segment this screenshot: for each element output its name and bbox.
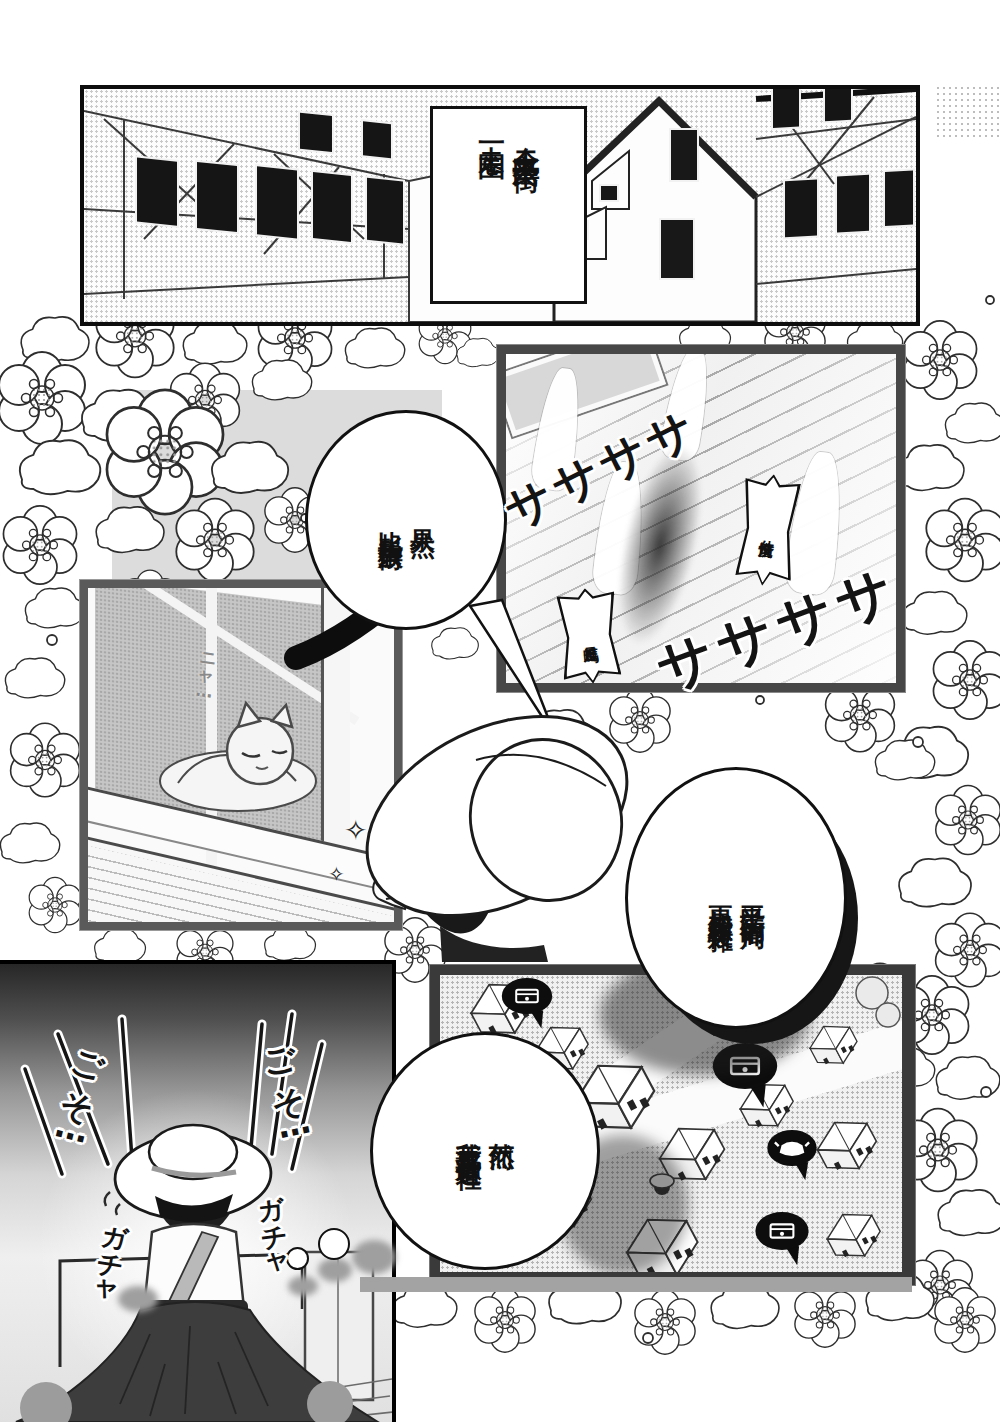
map-pin-pot (767, 1130, 816, 1180)
bubble-i-prefer-here: 然而我更喜歡這裡… (370, 1032, 600, 1270)
soft-shadow-blob (352, 1240, 396, 1274)
mini-bubble-what-situation: 什麼情況 (734, 471, 801, 588)
soft-shadow-blob (288, 1276, 318, 1296)
soft-shadow-blob (318, 1258, 352, 1282)
panel-room-girl (0, 960, 396, 1422)
sparkle-icon: ✧ (344, 814, 367, 847)
panel-cat-window (80, 580, 402, 930)
bubble-as-expected: 果然比起貴族街 (305, 410, 507, 630)
bubble-text: 平民街的佈局更加錯綜複雜 (704, 886, 768, 910)
panel-shadow-band (360, 1277, 912, 1292)
room-illustration (0, 964, 392, 1422)
thought-trail-circle (318, 1228, 350, 1260)
sparkle-icon: ✧ (328, 862, 345, 886)
map-pin-chest (755, 1212, 808, 1265)
bubble-commoner-layout: 平民街的佈局更加錯綜複雜 (625, 767, 847, 1029)
bubble-text: 然而我更喜歡這裡… (452, 1122, 519, 1180)
mini-bubble-is-it-wind: 是風嗎 (556, 586, 622, 687)
caption-text: 今天去平民街 走一圈！ (474, 125, 543, 168)
manga-page: 今天去平民街 走一圈！ ササササ ササササ 什麼情況 是風嗎 (0, 0, 1000, 1422)
cat-illustration (138, 693, 338, 813)
caption-box: 今天去平民街 走一圈！ (430, 106, 587, 304)
bubble-text: 果然比起貴族街 (374, 510, 438, 530)
